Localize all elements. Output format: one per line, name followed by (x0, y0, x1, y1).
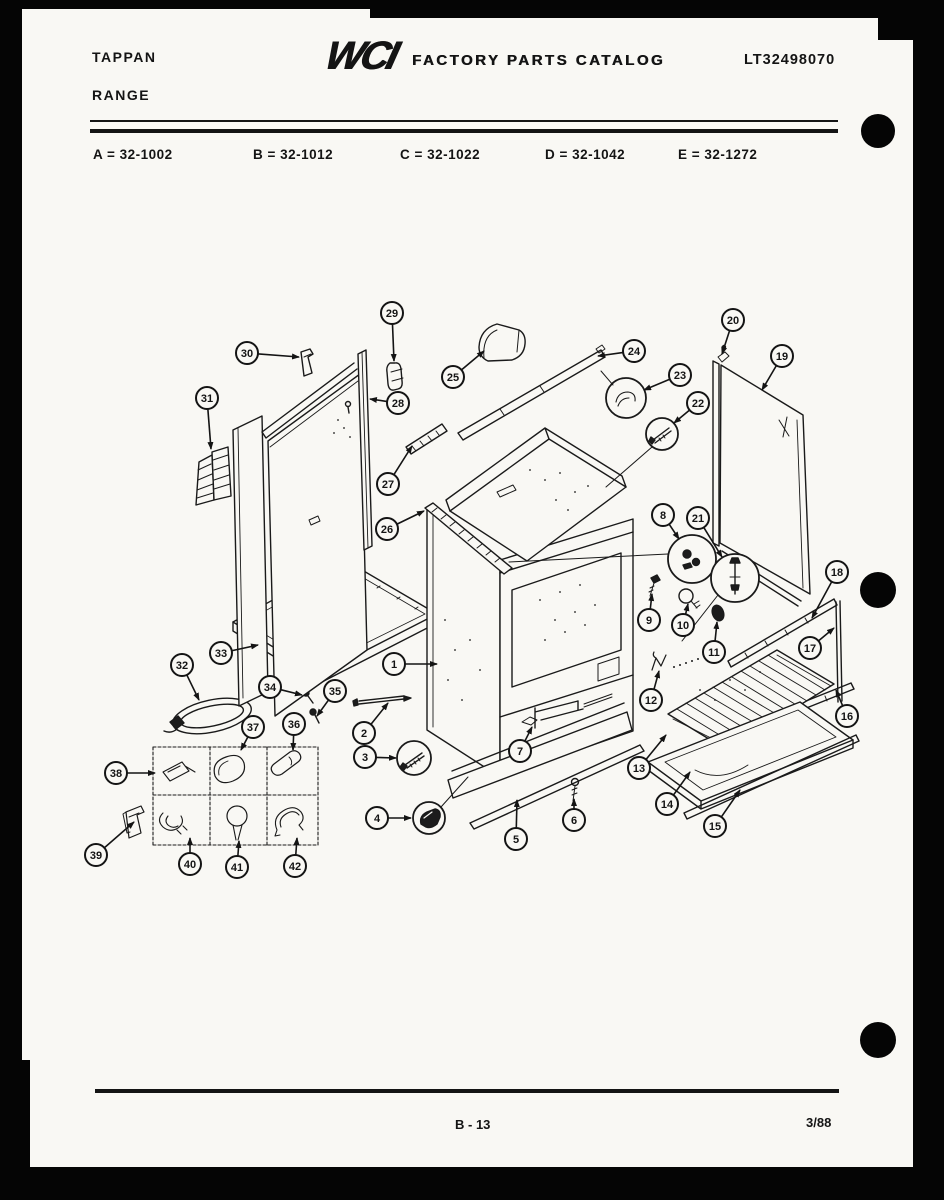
callout-26: 26 (376, 511, 424, 540)
svg-text:29: 29 (386, 308, 398, 320)
part-knob-11 (710, 604, 726, 623)
callout-37: 37 (241, 716, 264, 750)
svg-text:1: 1 (391, 659, 397, 671)
svg-text:8: 8 (660, 510, 666, 522)
svg-text:35: 35 (329, 686, 341, 698)
scan-border-top-right (370, 0, 944, 18)
svg-text:40: 40 (184, 859, 196, 871)
part-screw-9 (649, 575, 660, 596)
part-insulation-retainer-31 (196, 447, 231, 505)
svg-text:2: 2 (361, 728, 367, 740)
svg-text:30: 30 (241, 348, 253, 360)
callout-11: 11 (703, 622, 725, 663)
callout-2: 2 (353, 703, 388, 744)
svg-text:25: 25 (447, 372, 459, 384)
callout-41: 41 (226, 841, 248, 878)
callout-36: 36 (283, 713, 305, 750)
callout-38: 38 (105, 762, 155, 784)
callout-30: 30 (236, 342, 299, 364)
svg-text:10: 10 (677, 620, 689, 632)
part-screws-and-rod (303, 690, 411, 723)
svg-text:22: 22 (692, 398, 704, 410)
detail-circle-4 (413, 777, 468, 834)
svg-text:32: 32 (176, 660, 188, 672)
svg-text:16: 16 (841, 711, 853, 723)
callout-23: 23 (644, 364, 691, 390)
exploded-parts-diagram: 1234567891011121314151617181920212223242… (0, 0, 944, 1200)
callout-6: 6 (563, 799, 585, 831)
callout-17: 17 (799, 628, 834, 659)
svg-text:21: 21 (692, 513, 704, 525)
svg-text:20: 20 (727, 315, 739, 327)
part-clip-12 (652, 652, 666, 670)
callout-31: 31 (196, 387, 218, 449)
svg-text:39: 39 (90, 850, 102, 862)
scan-border-bottom (0, 1167, 944, 1200)
callout-24: 24 (598, 340, 645, 362)
svg-text:37: 37 (247, 722, 259, 734)
part-sleeve-36 (271, 751, 301, 776)
svg-text:3: 3 (362, 752, 368, 764)
part-wire-nut-37 (214, 755, 244, 782)
svg-text:27: 27 (382, 479, 394, 491)
svg-text:17: 17 (804, 643, 816, 655)
svg-text:12: 12 (645, 695, 657, 707)
svg-text:13: 13 (633, 763, 645, 775)
callout-29: 29 (381, 302, 403, 361)
svg-text:7: 7 (517, 746, 523, 758)
callout-9: 9 (638, 594, 660, 631)
callout-5: 5 (505, 800, 527, 850)
svg-text:23: 23 (674, 370, 686, 382)
punch-hole-middle (860, 572, 896, 608)
callout-40: 40 (179, 838, 201, 875)
punch-hole-bottom (860, 1022, 896, 1058)
part-top-rail-24 (458, 345, 605, 440)
callout-39: 39 (85, 822, 134, 866)
callout-42: 42 (284, 838, 306, 877)
callout-8: 8 (652, 504, 679, 539)
part-left-side-panel (262, 363, 367, 716)
svg-text:19: 19 (776, 351, 788, 363)
callout-4: 4 (366, 807, 411, 829)
svg-text:26: 26 (381, 524, 393, 536)
detail-circle-23 (601, 371, 646, 418)
part-rail-27 (406, 424, 447, 454)
svg-text:9: 9 (646, 615, 652, 627)
part-clip-30 (301, 349, 313, 376)
footer-rule (95, 1089, 839, 1093)
svg-text:42: 42 (289, 861, 301, 873)
part-hose-clamp-42 (275, 808, 303, 836)
part-terminal-38 (163, 762, 195, 781)
part-clip-40 (160, 813, 188, 834)
callout-12: 12 (640, 671, 662, 711)
part-bulb-10 (679, 589, 700, 608)
svg-text:36: 36 (288, 719, 300, 731)
callout-19: 19 (762, 345, 793, 390)
date-code: 3/88 (806, 1115, 831, 1130)
callout-3: 3 (354, 746, 396, 768)
callout-35: 35 (317, 680, 346, 716)
svg-text:33: 33 (215, 648, 227, 660)
callout-25: 25 (442, 351, 484, 388)
svg-text:5: 5 (513, 834, 519, 846)
detail-circle-3 (397, 741, 431, 775)
part-side-trim-panel (233, 416, 268, 706)
punch-hole-top (861, 114, 895, 148)
svg-text:34: 34 (264, 682, 277, 694)
callout-10: 10 (672, 604, 694, 636)
callout-22: 22 (674, 392, 709, 423)
scan-border-left (0, 0, 22, 1200)
detail-circle-22 (606, 418, 678, 487)
scan-border-right (913, 0, 944, 1200)
svg-text:41: 41 (231, 862, 243, 874)
svg-text:31: 31 (201, 393, 213, 405)
svg-text:18: 18 (831, 567, 843, 579)
svg-text:6: 6 (571, 815, 577, 827)
svg-text:24: 24 (628, 346, 641, 358)
callout-28: 28 (370, 392, 409, 414)
callout-32: 32 (171, 654, 199, 700)
part-vent-cap-25 (479, 324, 525, 361)
svg-text:15: 15 (709, 821, 721, 833)
catalog-page: TAPPAN RANGE WCI FACTORY PARTS CATALOG L… (0, 0, 944, 1200)
page-number: B - 13 (455, 1117, 490, 1132)
part-latch-plate-29 (387, 363, 403, 390)
callout-27: 27 (377, 446, 412, 495)
svg-text:28: 28 (392, 398, 404, 410)
part-loop-clamp-41 (227, 806, 247, 840)
svg-text:11: 11 (708, 647, 720, 659)
svg-text:4: 4 (374, 813, 381, 825)
svg-text:14: 14 (661, 799, 674, 811)
svg-text:38: 38 (110, 768, 122, 780)
